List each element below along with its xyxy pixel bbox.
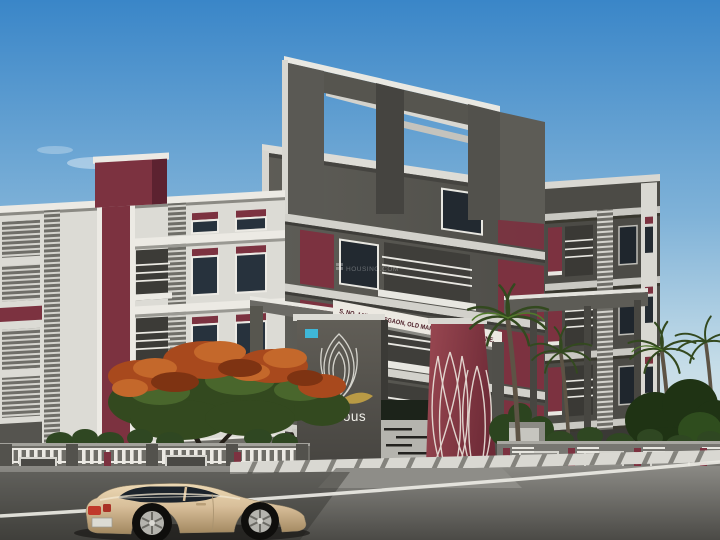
roof-stair-tower <box>93 153 169 208</box>
car-door-handle <box>196 503 206 506</box>
architectural-render: S. NO. 14/2/3, SUSGAON, OLD MAHALUNGE RO… <box>0 0 720 540</box>
blue-plate <box>305 329 318 338</box>
watermark-text: HOUSING.COM <box>346 266 399 273</box>
louver-strip-column <box>597 209 613 452</box>
maroon-feature-column <box>102 206 130 469</box>
render-canvas: S. NO. 14/2/3, SUSGAON, OLD MAHALUNGE RO… <box>0 0 720 540</box>
car-front-wheel <box>241 502 279 540</box>
driveway <box>318 468 522 488</box>
maroon-window-strips <box>548 227 562 416</box>
license-plate <box>92 518 112 527</box>
